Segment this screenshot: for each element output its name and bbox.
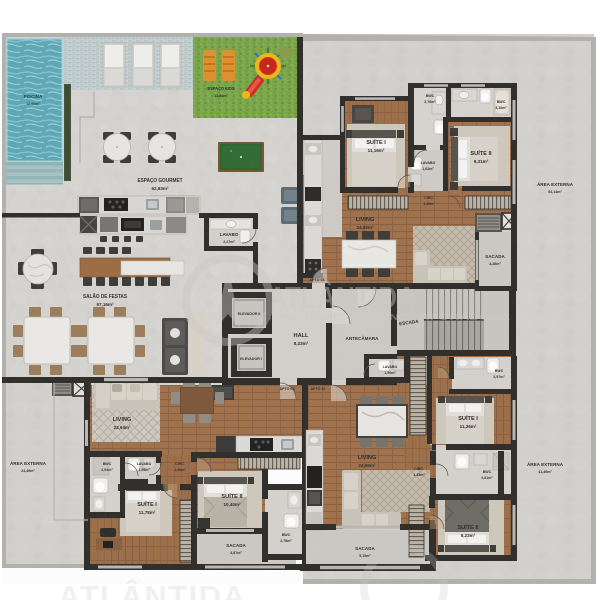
svg-text:ATLÂNTIDA: ATLÂNTIDA: [268, 279, 416, 315]
svg-text:CONSTRUTORA E INCORPORADORA: CONSTRUTORA E INCORPORADORA: [262, 313, 510, 322]
svg-text:ATLÂNTIDA: ATLÂNTIDA: [58, 578, 247, 600]
